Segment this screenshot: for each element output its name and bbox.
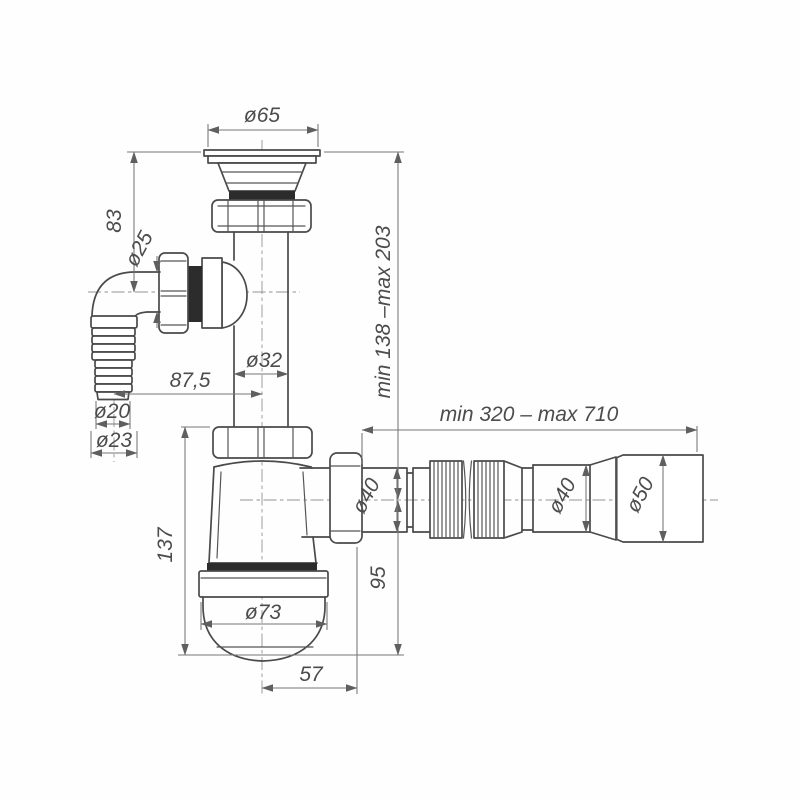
inlet-elbow [92,272,160,317]
dim-hose-pipe-diameter: ø40 [544,465,586,532]
dim-inlet-offset: 87,5 [114,369,262,394]
dim-cup-diameter: ø73 [201,601,327,630]
dim-label-hose-tip-diameter: ø20 [94,400,131,423]
dim-label-outlet-offset: 57 [299,663,324,686]
vertical-pipe [234,232,288,427]
dim-label-pipe-diameter: ø32 [246,349,283,372]
dim-label-height-range: min 138 –max 203 [372,225,395,398]
dim-label-hose-barb-diameter: ø23 [96,429,133,452]
dim-label-inlet-nut-diameter: ø25 [121,227,158,270]
dim-pipe-diameter: ø32 [234,349,288,374]
drawing-page: ø65 83 ø25 ø32 87,5 min 138 –max 203 ø20… [0,0,800,800]
siphon-technical-drawing: ø65 83 ø25 ø32 87,5 min 138 –max 203 ø20… [0,0,800,800]
sink-flange [204,150,320,200]
inlet-thread-band [187,266,202,322]
trap-inlet-nut [213,427,312,458]
dim-hose-barb-diameter: ø23 [91,429,137,458]
dim-label-inlet-height: 83 [103,209,126,233]
dim-label-cup-diameter: ø73 [245,601,282,624]
trap-body [207,461,330,571]
dim-label-hose-pipe-diameter: ø40 [544,474,581,517]
flexible-hose [362,457,616,540]
top-union-nut [212,200,311,232]
dim-hose-tip-diameter: ø20 [94,400,131,429]
dim-label-inlet-offset: 87,5 [170,369,211,392]
trap-cup-ring [199,571,328,597]
dim-label-length-range: min 320 – max 710 [440,403,619,426]
dim-label-flange-diameter: ø65 [244,104,281,127]
dim-label-outlet-drop: 95 [367,566,390,590]
dim-body-height: 137 [154,427,210,655]
dim-flange-diameter: ø65 [208,104,318,147]
dim-height-range: min 138 –max 203 [324,152,404,499]
centerlines [88,140,718,697]
cup-seal-band [207,563,317,571]
inlet-tee-socket [187,258,247,328]
dim-outlet-drop: 95 [367,501,398,655]
inlet-nut [159,253,188,333]
flange-thread-band [229,191,295,200]
dim-label-body-height: 137 [154,526,177,562]
hose-barb-connector [91,316,137,400]
